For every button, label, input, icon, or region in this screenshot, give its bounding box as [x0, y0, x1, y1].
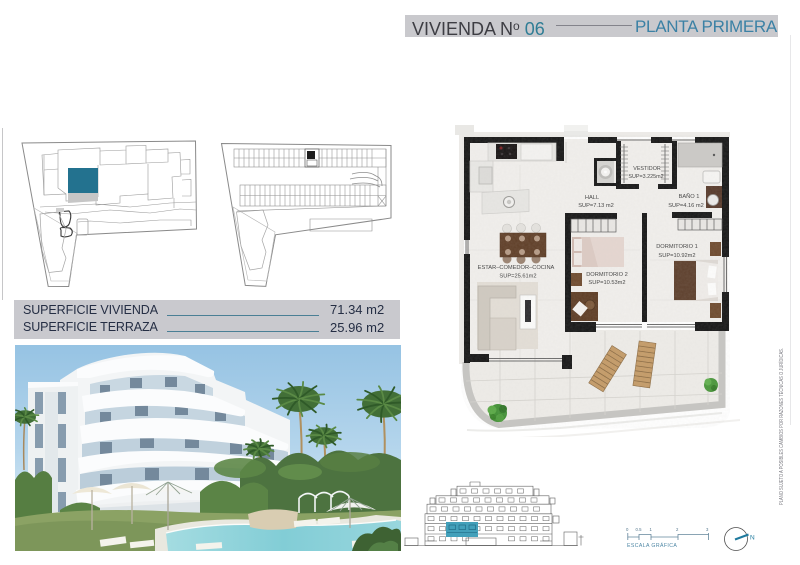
svg-text:DORMITORIO 1: DORMITORIO 1	[656, 244, 698, 250]
svg-text:SUP=4.16 m2: SUP=4.16 m2	[668, 203, 704, 209]
svg-text:SUP=10.53m2: SUP=10.53m2	[588, 280, 625, 286]
svg-text:SUP=10.92m2: SUP=10.92m2	[658, 253, 695, 259]
svg-text:SUP=7.13 m2: SUP=7.13 m2	[578, 203, 614, 209]
svg-text:DORMITORIO 2: DORMITORIO 2	[586, 272, 628, 278]
svg-text:HALL: HALL	[585, 195, 599, 201]
svg-text:3: 3	[706, 527, 709, 532]
svg-text:ESTAR–COMEDOR–COCINA: ESTAR–COMEDOR–COCINA	[478, 265, 555, 271]
svg-text:1: 1	[650, 527, 653, 532]
svg-text:SUP=25.61m2: SUP=25.61m2	[499, 274, 536, 280]
svg-text:0: 0	[626, 527, 629, 532]
svg-text:SUP=3.225m2: SUP=3.225m2	[628, 174, 663, 180]
svg-text:N: N	[750, 535, 755, 542]
svg-text:0.5: 0.5	[636, 527, 643, 532]
svg-text:2: 2	[676, 527, 679, 532]
svg-text:BAÑO 1: BAÑO 1	[679, 193, 700, 200]
svg-text:ESCALA GRÁFICA: ESCALA GRÁFICA	[627, 542, 677, 549]
svg-text:VESTIDOR: VESTIDOR	[633, 166, 661, 172]
